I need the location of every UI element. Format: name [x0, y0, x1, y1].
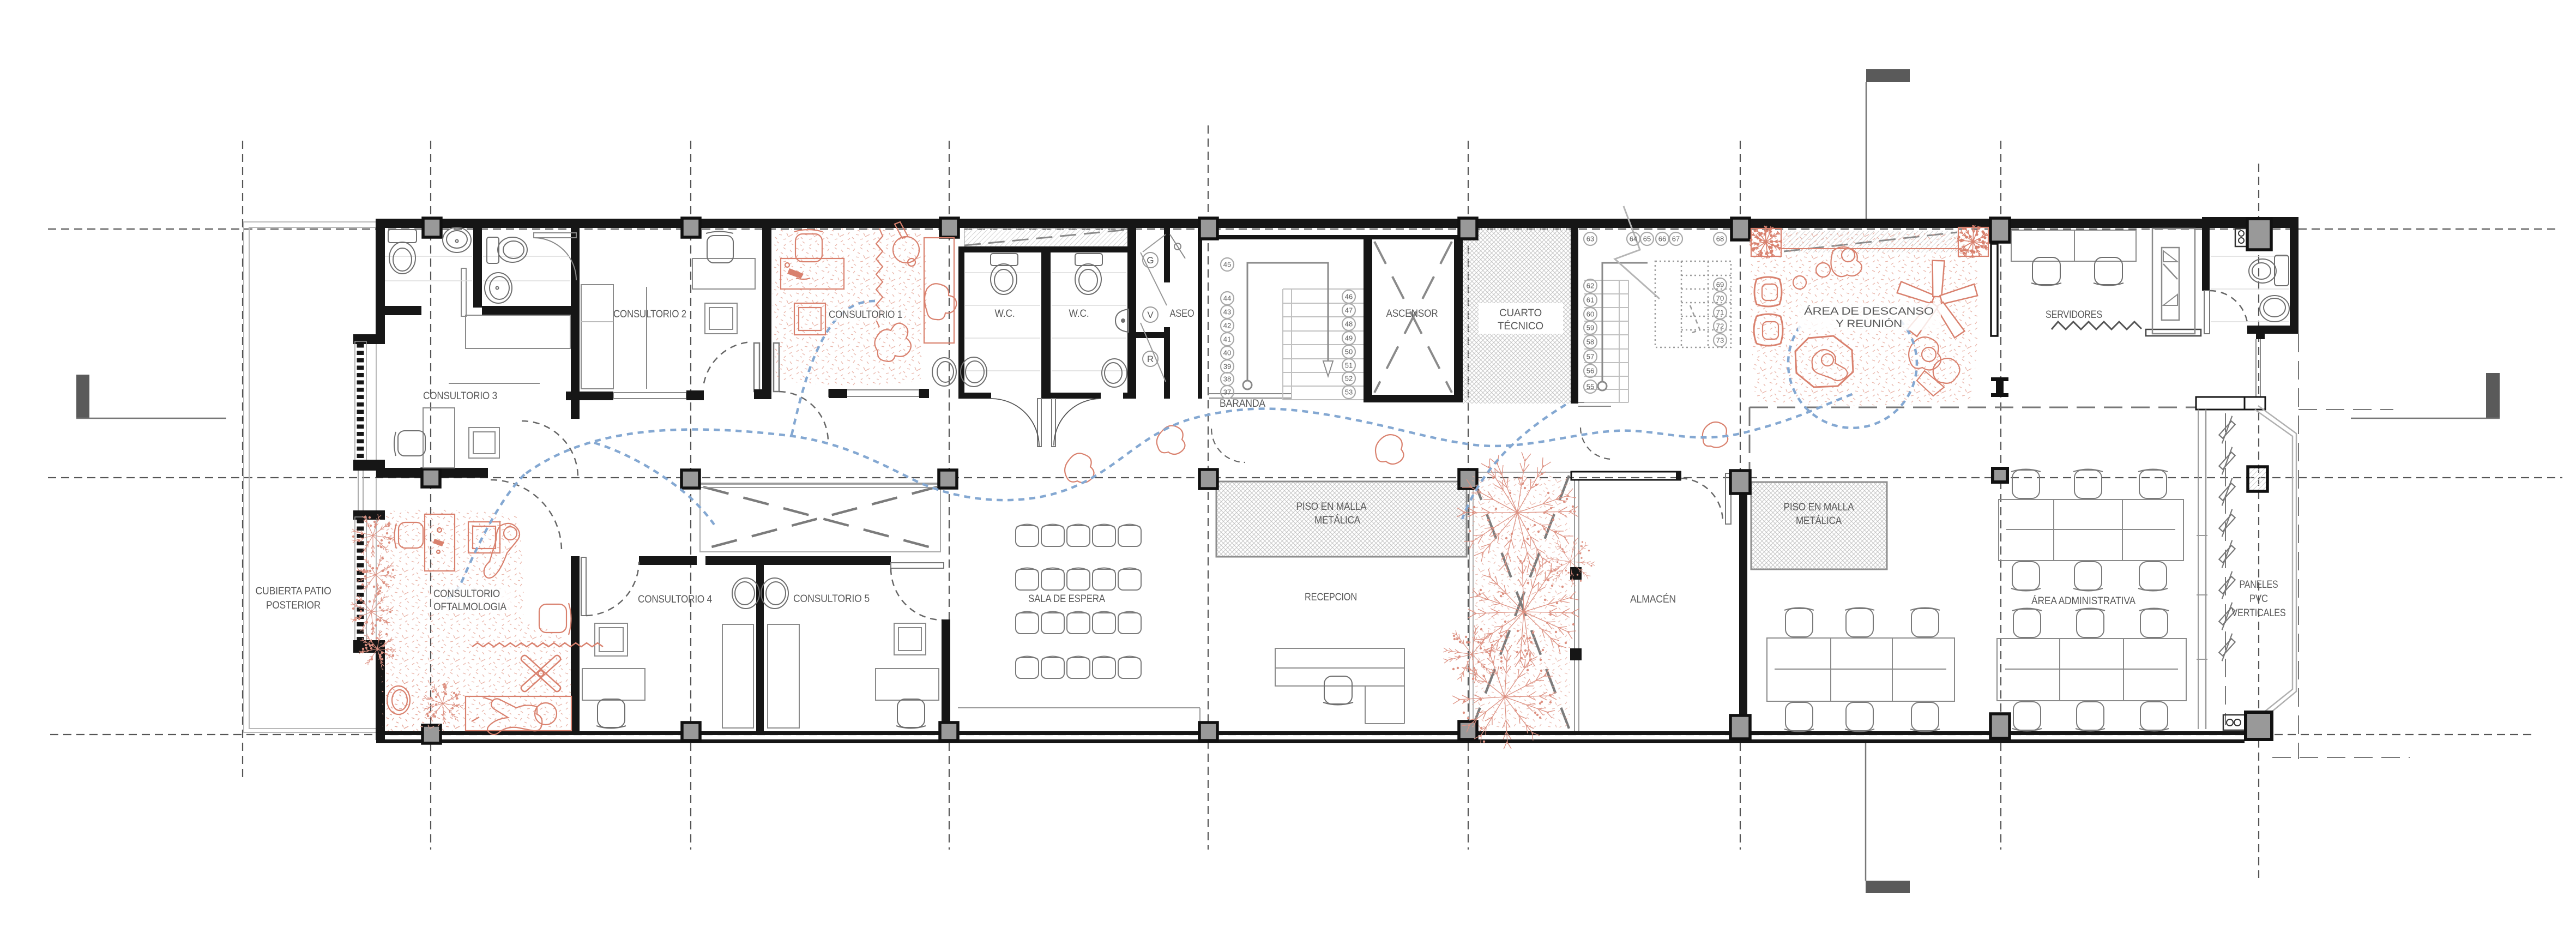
- svg-text:VERTICALES: VERTICALES: [2232, 607, 2286, 619]
- svg-text:ÁREA ADMINISTRATIVA: ÁREA ADMINISTRATIVA: [2031, 595, 2135, 607]
- svg-text:TÉCNICO: TÉCNICO: [1498, 321, 1543, 332]
- svg-text:SALA DE ESPERA: SALA DE ESPERA: [1028, 593, 1105, 605]
- svg-text:64: 64: [1630, 235, 1637, 243]
- svg-text:ASCENSOR: ASCENSOR: [1386, 308, 1438, 320]
- svg-text:V: V: [1147, 310, 1154, 320]
- svg-text:PVC: PVC: [2249, 593, 2268, 605]
- svg-text:48: 48: [1345, 320, 1353, 328]
- svg-text:68: 68: [1716, 235, 1724, 243]
- svg-text:56: 56: [1586, 367, 1594, 375]
- svg-text:45: 45: [1223, 261, 1231, 269]
- svg-text:CONSULTORIO 1: CONSULTORIO 1: [829, 309, 902, 321]
- svg-text:73: 73: [1716, 336, 1724, 345]
- svg-text:39: 39: [1223, 363, 1231, 371]
- svg-text:70: 70: [1716, 294, 1724, 303]
- svg-text:CUARTO: CUARTO: [1499, 308, 1542, 319]
- svg-text:57: 57: [1586, 353, 1594, 361]
- svg-text:71: 71: [1716, 309, 1724, 317]
- svg-text:RECEPCION: RECEPCION: [1305, 592, 1357, 603]
- svg-text:42: 42: [1223, 322, 1231, 330]
- svg-text:OFTALMOLOGIA: OFTALMOLOGIA: [433, 601, 506, 613]
- svg-text:63: 63: [1586, 235, 1594, 243]
- svg-text:ÁREA DE DESCANSO: ÁREA DE DESCANSO: [1804, 306, 1934, 317]
- svg-text:47: 47: [1345, 306, 1353, 315]
- svg-text:72: 72: [1716, 322, 1724, 330]
- svg-text:66: 66: [1658, 235, 1666, 243]
- svg-text:CONSULTORIO 4: CONSULTORIO 4: [638, 594, 713, 605]
- svg-text:R: R: [1147, 354, 1154, 364]
- svg-text:METÁLICA: METÁLICA: [1314, 515, 1360, 526]
- svg-text:CONSULTORIO 5: CONSULTORIO 5: [793, 593, 870, 605]
- svg-text:W.C.: W.C.: [1069, 308, 1089, 320]
- svg-text:ALMACÉN: ALMACÉN: [1630, 594, 1676, 605]
- svg-text:61: 61: [1586, 296, 1594, 304]
- svg-text:SERVIDORES: SERVIDORES: [2046, 309, 2102, 321]
- svg-text:65: 65: [1643, 235, 1651, 243]
- svg-text:44: 44: [1223, 294, 1231, 303]
- svg-text:BARANDA: BARANDA: [1220, 398, 1265, 410]
- svg-text:49: 49: [1345, 334, 1353, 342]
- svg-text:55: 55: [1586, 383, 1594, 391]
- svg-text:60: 60: [1586, 310, 1594, 318]
- svg-text:CUBIERTA PATIO: CUBIERTA PATIO: [256, 586, 331, 597]
- svg-text:69: 69: [1716, 281, 1724, 289]
- svg-text:ASEO: ASEO: [1170, 308, 1195, 320]
- svg-text:CONSULTORIO 2: CONSULTORIO 2: [613, 309, 686, 320]
- svg-text:46: 46: [1345, 293, 1353, 301]
- svg-text:37: 37: [1223, 388, 1231, 396]
- svg-text:62: 62: [1586, 282, 1594, 290]
- svg-text:PANELES: PANELES: [2240, 579, 2278, 591]
- svg-text:METÁLICA: METÁLICA: [1796, 515, 1842, 527]
- svg-text:PISO EN MALLA: PISO EN MALLA: [1784, 502, 1854, 513]
- svg-text:53: 53: [1345, 388, 1353, 396]
- svg-text:Y REUNIÓN: Y REUNIÓN: [1836, 318, 1902, 330]
- svg-text:58: 58: [1586, 338, 1594, 346]
- svg-text:67: 67: [1672, 235, 1680, 243]
- svg-text:40: 40: [1223, 349, 1231, 357]
- svg-text:51: 51: [1345, 362, 1353, 370]
- svg-text:50: 50: [1345, 348, 1353, 356]
- svg-text:CONSULTORIO: CONSULTORIO: [433, 588, 500, 600]
- svg-text:38: 38: [1223, 375, 1231, 383]
- svg-text:CONSULTORIO 3: CONSULTORIO 3: [423, 390, 497, 402]
- svg-text:G: G: [1147, 255, 1154, 266]
- svg-text:POSTERIOR: POSTERIOR: [266, 600, 321, 611]
- svg-text:52: 52: [1345, 375, 1353, 383]
- svg-text:59: 59: [1586, 324, 1594, 332]
- svg-text:41: 41: [1223, 335, 1231, 344]
- svg-text:W.C.: W.C.: [995, 308, 1015, 320]
- svg-text:PISO EN MALLA: PISO EN MALLA: [1296, 501, 1367, 513]
- svg-text:43: 43: [1223, 308, 1231, 316]
